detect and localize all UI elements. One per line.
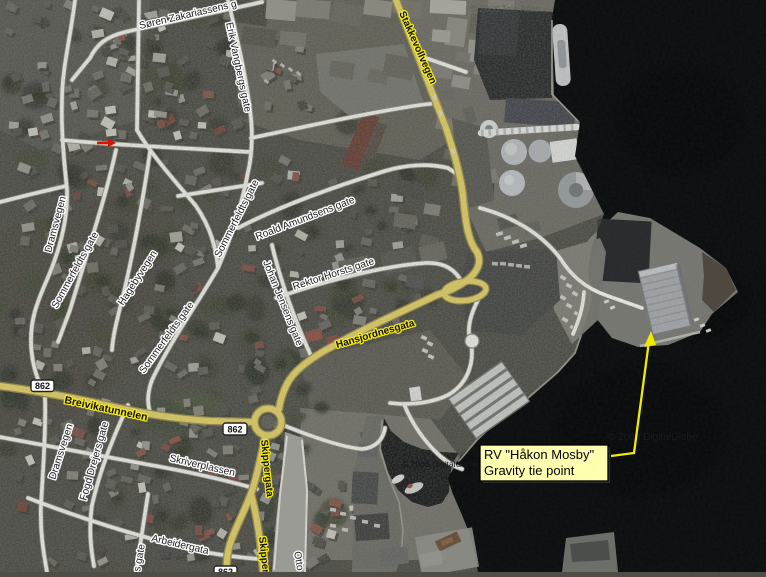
svg-text:862: 862 [227,424,242,434]
svg-text:RV "Håkon Mosby": RV "Håkon Mosby" [484,447,595,462]
svg-text:© 2008 DigitalGlobe: © 2008 DigitalGlobe [402,459,478,469]
svg-text:862: 862 [35,381,50,391]
svg-text:© 2008 Tele Atlas: © 2008 Tele Atlas [470,4,541,14]
svg-text:Gravity tie point: Gravity tie point [484,463,575,478]
svg-text:© 2008 DigitalGlobe: © 2008 DigitalGlobe [608,432,698,443]
svg-text:862: 862 [218,567,233,572]
